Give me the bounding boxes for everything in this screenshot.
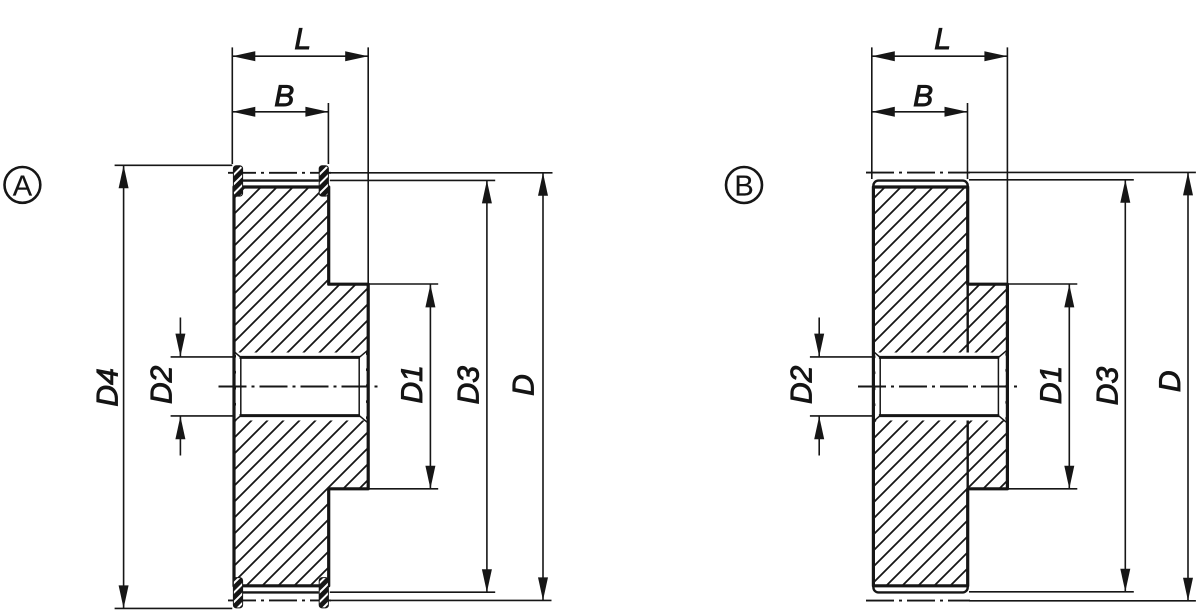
svg-text:D1: D1 [396, 365, 429, 403]
svg-text:D2: D2 [785, 365, 818, 404]
svg-text:D2: D2 [146, 365, 179, 404]
svg-text:D: D [1154, 370, 1187, 392]
svg-text:D3: D3 [453, 366, 486, 405]
svg-text:D: D [508, 374, 541, 396]
svg-text:D4: D4 [91, 368, 124, 406]
svg-text:B: B [913, 80, 933, 113]
svg-text:D1: D1 [1035, 366, 1068, 404]
svg-text:B: B [734, 170, 753, 202]
svg-text:L: L [294, 23, 311, 56]
svg-text:L: L [934, 23, 951, 56]
svg-text:B: B [274, 80, 294, 113]
svg-text:D3: D3 [1092, 367, 1125, 406]
svg-text:A: A [13, 170, 33, 202]
